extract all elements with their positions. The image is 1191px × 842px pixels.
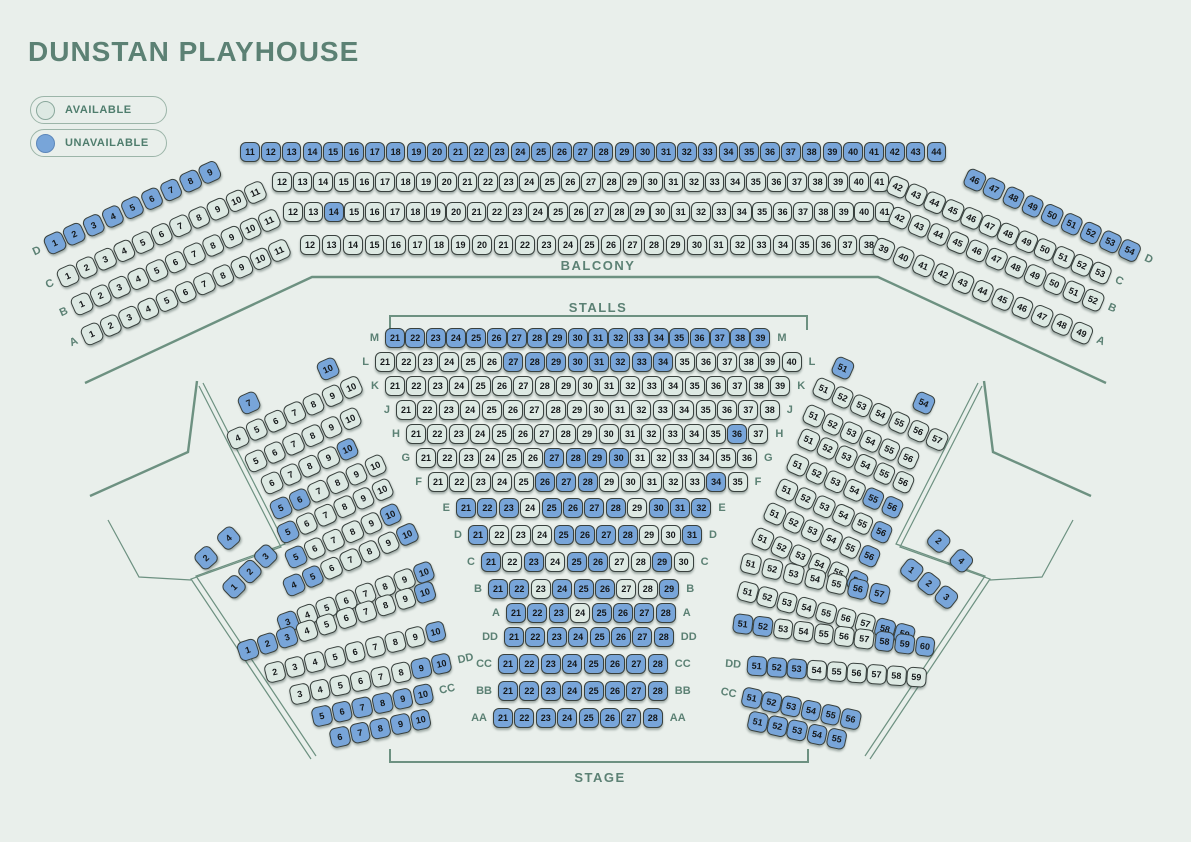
seat-B-39-available[interactable]: 39 xyxy=(834,202,854,222)
seat-A-16-available[interactable]: 16 xyxy=(386,235,406,255)
seat-L-26-available[interactable]: 26 xyxy=(482,352,502,372)
seat-DD-53-unavailable: 53 xyxy=(786,658,807,679)
seat-L-28-unavailable: 28 xyxy=(525,352,545,372)
seat-K-26-available[interactable]: 26 xyxy=(492,376,512,396)
seat-DD-24-unavailable: 24 xyxy=(568,627,588,647)
seat-DD-58-available[interactable]: 58 xyxy=(886,665,907,686)
seat-A-24-available[interactable]: 24 xyxy=(558,235,578,255)
seat-A-14-available[interactable]: 14 xyxy=(343,235,363,255)
seat-A-52-unavailable: 52 xyxy=(752,616,774,638)
seat-C-27-available[interactable]: 27 xyxy=(609,552,629,572)
seat-H-25-available[interactable]: 25 xyxy=(492,424,512,444)
seat-H-26-available[interactable]: 26 xyxy=(513,424,533,444)
seat-D-20-unavailable: 20 xyxy=(427,142,447,162)
seat-D-21-unavailable: 21 xyxy=(448,142,468,162)
seat-C-14-available[interactable]: 14 xyxy=(313,172,333,192)
seat-G-22-available[interactable]: 22 xyxy=(437,448,457,468)
seat-H-28-available[interactable]: 28 xyxy=(556,424,576,444)
seat-B-15-available[interactable]: 15 xyxy=(344,202,364,222)
seat-D-23-available[interactable]: 23 xyxy=(511,525,531,545)
seat-L-23-available[interactable]: 23 xyxy=(418,352,438,372)
seat-A-18-available[interactable]: 18 xyxy=(429,235,449,255)
seat-L-34-unavailable: 34 xyxy=(653,352,673,372)
row-label-AA: AA xyxy=(465,708,487,728)
seat-H-22-available[interactable]: 22 xyxy=(427,424,447,444)
seat-H-21-available[interactable]: 21 xyxy=(406,424,426,444)
seat-C-29-unavailable: 29 xyxy=(652,552,672,572)
seat-A-13-available[interactable]: 13 xyxy=(322,235,342,255)
seat-F-22-available[interactable]: 22 xyxy=(449,472,469,492)
seat-E-28-unavailable: 28 xyxy=(606,498,626,518)
seat-C-27-available[interactable]: 27 xyxy=(581,172,601,192)
seat-A-53-available[interactable]: 53 xyxy=(773,618,795,640)
seat-C-24-available[interactable]: 24 xyxy=(519,172,539,192)
row-label-H: H xyxy=(775,424,797,444)
seat-K-21-available[interactable]: 21 xyxy=(385,376,405,396)
seat-K-38-available[interactable]: 38 xyxy=(749,376,769,396)
seat-B-33-available[interactable]: 33 xyxy=(712,202,732,222)
seat-L-21-available[interactable]: 21 xyxy=(375,352,395,372)
seat-L-30-unavailable: 30 xyxy=(568,352,588,372)
seat-C-13-available[interactable]: 13 xyxy=(293,172,313,192)
seat-row-stalls-right-DD: 515253545556575859DD xyxy=(747,656,748,675)
seat-DD-56-available[interactable]: 56 xyxy=(846,663,867,684)
seat-K-32-available[interactable]: 32 xyxy=(620,376,640,396)
seat-BB-25-unavailable: 25 xyxy=(584,681,604,701)
seat-B-29-available[interactable]: 29 xyxy=(630,202,650,222)
seat-F-28-unavailable: 28 xyxy=(578,472,598,492)
seat-A-15-available[interactable]: 15 xyxy=(365,235,385,255)
seat-L-36-available[interactable]: 36 xyxy=(696,352,716,372)
seat-L-22-available[interactable]: 22 xyxy=(396,352,416,372)
seat-CC-25-unavailable: 25 xyxy=(584,654,604,674)
seat-K-28-available[interactable]: 28 xyxy=(535,376,555,396)
seat-H-34-available[interactable]: 34 xyxy=(684,424,704,444)
seat-F-29-available[interactable]: 29 xyxy=(599,472,619,492)
seat-AA-21-unavailable: 21 xyxy=(493,708,513,728)
row-label-F: F xyxy=(755,472,777,492)
seat-AA-24-unavailable: 24 xyxy=(557,708,577,728)
seat-A-30-available[interactable]: 30 xyxy=(687,235,707,255)
seat-J-24-available[interactable]: 24 xyxy=(460,400,480,420)
seat-K-39-available[interactable]: 39 xyxy=(770,376,790,396)
seat-C-21-available[interactable]: 21 xyxy=(458,172,478,192)
seat-L-29-unavailable: 29 xyxy=(546,352,566,372)
seat-C-15-available[interactable]: 15 xyxy=(334,172,354,192)
row-label-E: E xyxy=(718,498,740,518)
seat-L-35-available[interactable]: 35 xyxy=(675,352,695,372)
seat-D-25-unavailable: 25 xyxy=(531,142,551,162)
seat-A-29-available[interactable]: 29 xyxy=(666,235,686,255)
seat-L-25-available[interactable]: 25 xyxy=(461,352,481,372)
seat-A-21-unavailable: 21 xyxy=(506,603,526,623)
seat-A-56-available[interactable]: 56 xyxy=(833,626,855,648)
seat-A-34-available[interactable]: 34 xyxy=(773,235,793,255)
seat-J-30-available[interactable]: 30 xyxy=(589,400,609,420)
seat-A-24-available[interactable]: 24 xyxy=(570,603,590,623)
seat-D-26-unavailable: 26 xyxy=(552,142,572,162)
seat-B-20-available[interactable]: 20 xyxy=(446,202,466,222)
row-label-BB: BB xyxy=(675,681,697,701)
seat-J-32-available[interactable]: 32 xyxy=(631,400,651,420)
seat-G-31-available[interactable]: 31 xyxy=(630,448,650,468)
seat-B-34-available[interactable]: 34 xyxy=(732,202,752,222)
seat-G-32-available[interactable]: 32 xyxy=(651,448,671,468)
seat-K-24-available[interactable]: 24 xyxy=(449,376,469,396)
legend-available-label: AVAILABLE xyxy=(65,104,132,116)
seat-H-29-available[interactable]: 29 xyxy=(577,424,597,444)
seat-B-23-available[interactable]: 23 xyxy=(508,202,528,222)
seat-C-38-available[interactable]: 38 xyxy=(808,172,828,192)
seat-G-23-available[interactable]: 23 xyxy=(459,448,479,468)
seat-F-35-available[interactable]: 35 xyxy=(728,472,748,492)
seat-J-36-available[interactable]: 36 xyxy=(717,400,737,420)
row-label-B: B xyxy=(460,579,482,599)
seat-C-35-available[interactable]: 35 xyxy=(746,172,766,192)
seat-DD-27-unavailable: 27 xyxy=(632,627,652,647)
seat-B-25-available[interactable]: 25 xyxy=(548,202,568,222)
seat-H-23-available[interactable]: 23 xyxy=(449,424,469,444)
seat-B-21-available[interactable]: 21 xyxy=(467,202,487,222)
seat-J-27-available[interactable]: 27 xyxy=(524,400,544,420)
seat-F-23-available[interactable]: 23 xyxy=(471,472,491,492)
seat-DD-55-available[interactable]: 55 xyxy=(826,661,847,682)
seat-A-37-available[interactable]: 37 xyxy=(838,235,858,255)
seat-G-21-available[interactable]: 21 xyxy=(416,448,436,468)
seat-K-36-available[interactable]: 36 xyxy=(706,376,726,396)
seat-D-24-available[interactable]: 24 xyxy=(532,525,552,545)
seat-A-22-available[interactable]: 22 xyxy=(515,235,535,255)
seat-A-36-available[interactable]: 36 xyxy=(816,235,836,255)
seat-K-30-available[interactable]: 30 xyxy=(578,376,598,396)
seat-M-34-unavailable: 34 xyxy=(649,328,669,348)
seat-G-33-available[interactable]: 33 xyxy=(673,448,693,468)
legend-available: AVAILABLE xyxy=(30,96,167,124)
seat-K-29-available[interactable]: 29 xyxy=(556,376,576,396)
seat-AA-22-unavailable: 22 xyxy=(514,708,534,728)
seat-M-33-unavailable: 33 xyxy=(629,328,649,348)
seat-B-22-unavailable: 22 xyxy=(509,579,529,599)
seat-K-34-available[interactable]: 34 xyxy=(663,376,683,396)
balcony-section-label: BALCONY xyxy=(561,258,636,273)
seat-CC-24-unavailable: 24 xyxy=(562,654,582,674)
seat-A-26-available[interactable]: 26 xyxy=(601,235,621,255)
seat-C-12-available[interactable]: 12 xyxy=(272,172,292,192)
seat-C-29-available[interactable]: 29 xyxy=(622,172,642,192)
seat-H-30-available[interactable]: 30 xyxy=(599,424,619,444)
seat-H-27-available[interactable]: 27 xyxy=(534,424,554,444)
seat-C-30-available[interactable]: 30 xyxy=(674,552,694,572)
seat-C-30-available[interactable]: 30 xyxy=(643,172,663,192)
seat-C-26-available[interactable]: 26 xyxy=(561,172,581,192)
seat-CC-27-unavailable: 27 xyxy=(626,654,646,674)
seat-J-23-available[interactable]: 23 xyxy=(439,400,459,420)
seat-B-21-unavailable: 21 xyxy=(488,579,508,599)
seat-K-22-available[interactable]: 22 xyxy=(406,376,426,396)
seat-B-35-available[interactable]: 35 xyxy=(752,202,772,222)
seat-A-25-unavailable: 25 xyxy=(592,603,612,623)
seat-BB-28-unavailable: 28 xyxy=(648,681,668,701)
seat-M-38-unavailable: 38 xyxy=(730,328,750,348)
seat-D-29-unavailable: 29 xyxy=(615,142,635,162)
seat-C-19-available[interactable]: 19 xyxy=(416,172,436,192)
seat-A-55-available[interactable]: 55 xyxy=(813,623,835,645)
seat-A-57-available[interactable]: 57 xyxy=(854,628,876,650)
seat-H-32-available[interactable]: 32 xyxy=(641,424,661,444)
seat-J-33-available[interactable]: 33 xyxy=(653,400,673,420)
row-label-CC: CC xyxy=(675,654,697,674)
seat-A-27-available[interactable]: 27 xyxy=(623,235,643,255)
seat-C-25-available[interactable]: 25 xyxy=(540,172,560,192)
seat-H-31-available[interactable]: 31 xyxy=(620,424,640,444)
seat-B-12-available[interactable]: 12 xyxy=(283,202,303,222)
seat-M-29-unavailable: 29 xyxy=(547,328,567,348)
seat-B-38-available[interactable]: 38 xyxy=(814,202,834,222)
seat-F-34-unavailable: 34 xyxy=(706,472,726,492)
seat-D-31-unavailable: 31 xyxy=(656,142,676,162)
seat-L-40-available[interactable]: 40 xyxy=(782,352,802,372)
seat-E-24-available[interactable]: 24 xyxy=(520,498,540,518)
seat-B-23-available[interactable]: 23 xyxy=(531,579,551,599)
seat-C-16-available[interactable]: 16 xyxy=(355,172,375,192)
seat-J-28-available[interactable]: 28 xyxy=(546,400,566,420)
seat-DD-51-unavailable: 51 xyxy=(747,656,768,677)
seat-J-34-available[interactable]: 34 xyxy=(674,400,694,420)
seat-G-24-available[interactable]: 24 xyxy=(480,448,500,468)
seat-K-23-available[interactable]: 23 xyxy=(428,376,448,396)
seat-K-35-available[interactable]: 35 xyxy=(685,376,705,396)
seat-K-37-available[interactable]: 37 xyxy=(727,376,747,396)
seat-A-23-unavailable: 23 xyxy=(549,603,569,623)
seat-C-17-available[interactable]: 17 xyxy=(375,172,395,192)
seat-J-31-available[interactable]: 31 xyxy=(610,400,630,420)
seat-A-17-available[interactable]: 17 xyxy=(408,235,428,255)
seat-G-36-available[interactable]: 36 xyxy=(737,448,757,468)
seat-L-39-available[interactable]: 39 xyxy=(760,352,780,372)
seat-A-32-available[interactable]: 32 xyxy=(730,235,750,255)
seat-D-29-available[interactable]: 29 xyxy=(639,525,659,545)
row-label-L: L xyxy=(347,352,369,372)
seat-B-40-available[interactable]: 40 xyxy=(854,202,874,222)
seat-H-24-available[interactable]: 24 xyxy=(470,424,490,444)
row-label-J: J xyxy=(368,400,390,420)
seat-H-35-available[interactable]: 35 xyxy=(706,424,726,444)
seat-F-31-available[interactable]: 31 xyxy=(642,472,662,492)
seat-D-22-unavailable: 22 xyxy=(469,142,489,162)
seat-D-26-unavailable: 26 xyxy=(575,525,595,545)
seat-E-22-unavailable: 22 xyxy=(477,498,497,518)
seat-G-26-available[interactable]: 26 xyxy=(523,448,543,468)
legend-unavailable: UNAVAILABLE xyxy=(30,129,167,157)
seat-J-35-available[interactable]: 35 xyxy=(696,400,716,420)
row-label-E: E xyxy=(428,498,450,518)
seat-D-40-unavailable: 40 xyxy=(843,142,863,162)
seat-B-13-available[interactable]: 13 xyxy=(304,202,324,222)
seat-L-24-available[interactable]: 24 xyxy=(439,352,459,372)
row-label-G: G xyxy=(388,448,410,468)
seat-B-22-available[interactable]: 22 xyxy=(487,202,507,222)
seat-G-35-available[interactable]: 35 xyxy=(716,448,736,468)
seat-L-27-unavailable: 27 xyxy=(503,352,523,372)
seat-D-24-unavailable: 24 xyxy=(511,142,531,162)
seat-C-23-available[interactable]: 23 xyxy=(499,172,519,192)
seat-DD-54-available[interactable]: 54 xyxy=(806,660,827,681)
seat-B-28-available[interactable]: 28 xyxy=(610,202,630,222)
seat-A-28-available[interactable]: 28 xyxy=(644,235,664,255)
seat-D-28-unavailable: 28 xyxy=(594,142,614,162)
seat-D-16-unavailable: 16 xyxy=(344,142,364,162)
seat-C-22-available[interactable]: 22 xyxy=(502,552,522,572)
seat-G-34-available[interactable]: 34 xyxy=(694,448,714,468)
seat-map-page: DUNSTAN PLAYHOUSE AVAILABLE UNAVAILABLE … xyxy=(0,0,1191,842)
seat-B-19-available[interactable]: 19 xyxy=(426,202,446,222)
seat-B-17-available[interactable]: 17 xyxy=(385,202,405,222)
seat-F-24-available[interactable]: 24 xyxy=(492,472,512,492)
seat-DD-26-unavailable: 26 xyxy=(611,627,631,647)
seat-B-16-available[interactable]: 16 xyxy=(365,202,385,222)
seat-DD-52-unavailable: 52 xyxy=(767,657,788,678)
seat-B-30-available[interactable]: 30 xyxy=(650,202,670,222)
seat-B-37-available[interactable]: 37 xyxy=(793,202,813,222)
seat-C-36-available[interactable]: 36 xyxy=(767,172,787,192)
seat-CC-22-unavailable: 22 xyxy=(519,654,539,674)
seat-E-32-unavailable: 32 xyxy=(691,498,711,518)
seat-B-27-available[interactable]: 27 xyxy=(589,202,609,222)
seat-H-33-available[interactable]: 33 xyxy=(663,424,683,444)
seat-C-28-available[interactable]: 28 xyxy=(631,552,651,572)
seat-A-19-available[interactable]: 19 xyxy=(451,235,471,255)
seat-D-22-available[interactable]: 22 xyxy=(489,525,509,545)
seat-F-21-available[interactable]: 21 xyxy=(428,472,448,492)
seat-M-24-unavailable: 24 xyxy=(446,328,466,348)
seat-D-15-unavailable: 15 xyxy=(323,142,343,162)
seat-C-25-unavailable: 25 xyxy=(567,552,587,572)
seat-C-39-available[interactable]: 39 xyxy=(828,172,848,192)
seat-F-26-unavailable: 26 xyxy=(535,472,555,492)
seat-B-31-available[interactable]: 31 xyxy=(671,202,691,222)
seat-E-31-unavailable: 31 xyxy=(670,498,690,518)
legend-unavailable-label: UNAVAILABLE xyxy=(65,137,149,149)
seat-J-21-available[interactable]: 21 xyxy=(396,400,416,420)
seat-C-18-available[interactable]: 18 xyxy=(396,172,416,192)
seat-L-37-available[interactable]: 37 xyxy=(717,352,737,372)
row-label-D: D xyxy=(440,525,462,545)
seat-B-24-available[interactable]: 24 xyxy=(528,202,548,222)
seat-C-37-available[interactable]: 37 xyxy=(787,172,807,192)
seat-AA-23-unavailable: 23 xyxy=(536,708,556,728)
seat-C-24-available[interactable]: 24 xyxy=(545,552,565,572)
seat-J-26-available[interactable]: 26 xyxy=(503,400,523,420)
seat-J-22-available[interactable]: 22 xyxy=(417,400,437,420)
seat-C-22-available[interactable]: 22 xyxy=(478,172,498,192)
seat-C-20-available[interactable]: 20 xyxy=(437,172,457,192)
seat-A-35-available[interactable]: 35 xyxy=(795,235,815,255)
seat-A-22-unavailable: 22 xyxy=(527,603,547,623)
seat-A-20-available[interactable]: 20 xyxy=(472,235,492,255)
seat-AA-27-unavailable: 27 xyxy=(621,708,641,728)
seat-C-40-available[interactable]: 40 xyxy=(849,172,869,192)
seat-J-37-available[interactable]: 37 xyxy=(738,400,758,420)
seat-C-34-available[interactable]: 34 xyxy=(725,172,745,192)
seat-B-24-unavailable: 24 xyxy=(552,579,572,599)
seat-C-31-available[interactable]: 31 xyxy=(664,172,684,192)
stalls-section-label: STALLS xyxy=(569,300,628,315)
seat-K-25-available[interactable]: 25 xyxy=(471,376,491,396)
seat-D-41-unavailable: 41 xyxy=(864,142,884,162)
seat-A-33-available[interactable]: 33 xyxy=(752,235,772,255)
seat-D-42-unavailable: 42 xyxy=(885,142,905,162)
seat-J-29-available[interactable]: 29 xyxy=(567,400,587,420)
seat-B-27-available[interactable]: 27 xyxy=(616,579,636,599)
seat-C-28-available[interactable]: 28 xyxy=(602,172,622,192)
row-label-BB: BB xyxy=(470,681,492,701)
seat-A-12-available[interactable]: 12 xyxy=(300,235,320,255)
row-label-DD: DD xyxy=(719,654,742,675)
seat-B-32-available[interactable]: 32 xyxy=(691,202,711,222)
seat-B-36-available[interactable]: 36 xyxy=(773,202,793,222)
row-label-C: C xyxy=(701,552,723,572)
seat-D-30-available[interactable]: 30 xyxy=(661,525,681,545)
seat-D-12-unavailable: 12 xyxy=(261,142,281,162)
seat-CC-23-unavailable: 23 xyxy=(541,654,561,674)
seat-L-38-available[interactable]: 38 xyxy=(739,352,759,372)
seat-C-32-available[interactable]: 32 xyxy=(684,172,704,192)
seat-DD-57-available[interactable]: 57 xyxy=(866,664,887,685)
seat-B-28-available[interactable]: 28 xyxy=(638,579,658,599)
seat-G-25-available[interactable]: 25 xyxy=(502,448,522,468)
seat-K-31-available[interactable]: 31 xyxy=(599,376,619,396)
seat-K-33-available[interactable]: 33 xyxy=(642,376,662,396)
seat-BB-26-unavailable: 26 xyxy=(605,681,625,701)
seat-L-31-unavailable: 31 xyxy=(589,352,609,372)
seat-D-37-unavailable: 37 xyxy=(781,142,801,162)
seat-D-44-unavailable: 44 xyxy=(927,142,947,162)
seat-B-26-available[interactable]: 26 xyxy=(569,202,589,222)
seat-D-21-unavailable: 21 xyxy=(468,525,488,545)
seat-C-33-available[interactable]: 33 xyxy=(705,172,725,192)
stage-label: STAGE xyxy=(574,770,625,785)
seat-B-18-available[interactable]: 18 xyxy=(406,202,426,222)
seat-DD-59-available[interactable]: 59 xyxy=(906,667,927,688)
seat-BB-24-unavailable: 24 xyxy=(562,681,582,701)
seat-M-36-unavailable: 36 xyxy=(690,328,710,348)
seat-K-27-available[interactable]: 27 xyxy=(513,376,533,396)
seat-J-38-available[interactable]: 38 xyxy=(760,400,780,420)
available-seat-icon xyxy=(36,101,55,120)
seat-A-54-available[interactable]: 54 xyxy=(793,621,815,643)
seat-D-43-unavailable: 43 xyxy=(906,142,926,162)
seat-A-31-available[interactable]: 31 xyxy=(709,235,729,255)
seat-A-51-unavailable: 51 xyxy=(732,613,754,635)
seat-J-25-available[interactable]: 25 xyxy=(482,400,502,420)
seat-F-30-available[interactable]: 30 xyxy=(621,472,641,492)
seat-CC-26-unavailable: 26 xyxy=(605,654,625,674)
seat-DD-22-unavailable: 22 xyxy=(525,627,545,647)
seat-D-36-unavailable: 36 xyxy=(760,142,780,162)
seat-A-23-available[interactable]: 23 xyxy=(537,235,557,255)
row-label-D: D xyxy=(709,525,731,545)
seat-M-39-unavailable: 39 xyxy=(750,328,770,348)
seat-F-33-available[interactable]: 33 xyxy=(685,472,705,492)
seat-A-25-available[interactable]: 25 xyxy=(580,235,600,255)
seat-H-37-available[interactable]: 37 xyxy=(748,424,768,444)
row-label-DD: DD xyxy=(476,627,498,647)
seat-D-17-unavailable: 17 xyxy=(365,142,385,162)
seat-E-29-available[interactable]: 29 xyxy=(627,498,647,518)
seat-F-32-available[interactable]: 32 xyxy=(663,472,683,492)
seat-A-21-available[interactable]: 21 xyxy=(494,235,514,255)
seat-F-25-available[interactable]: 25 xyxy=(514,472,534,492)
